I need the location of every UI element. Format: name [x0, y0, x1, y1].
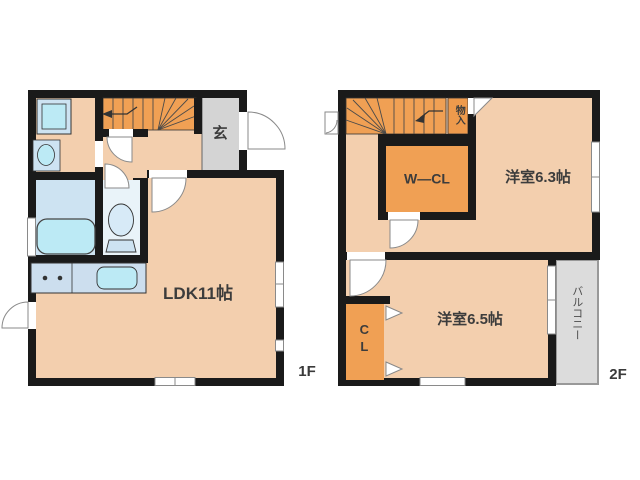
- stairs-icon: [346, 98, 446, 134]
- vanity-basin-icon: [33, 140, 60, 171]
- door-swing-icon: [2, 302, 28, 328]
- washing-machine-icon: [37, 99, 71, 134]
- bathtub-icon: [37, 219, 95, 254]
- window-icon: [420, 378, 465, 386]
- floor-1-label: 1F: [298, 364, 316, 380]
- casement-window-icon: [325, 112, 338, 134]
- kitchen-counter-icon: [31, 263, 146, 293]
- ldk-room-label: LDK11帖: [163, 285, 233, 303]
- entrance-label: 玄: [212, 126, 227, 142]
- room-6-5-label: 洋室6.5帖: [437, 312, 503, 328]
- closet-label: CL: [357, 322, 371, 356]
- walk-in-closet-label: W—CL: [404, 172, 450, 187]
- window-icon: [276, 340, 284, 351]
- floor-1-plan: [2, 90, 285, 386]
- balcony-label: バルコニー: [570, 286, 582, 341]
- floor-plan-drawing: [0, 0, 640, 480]
- floor-plan-image: 玄 LDK11帖 1F 物入 W—CL 洋室6.3帖 洋室6.5帖 CL バルコ…: [0, 0, 640, 480]
- storage-label: 物入: [453, 105, 464, 125]
- entry-door-swing-icon: [248, 112, 285, 149]
- room-6-3-label: 洋室6.3帖: [505, 170, 571, 186]
- stairs-icon: [102, 98, 196, 130]
- window-icon: [28, 218, 36, 256]
- kitchen-sink-icon: [97, 267, 137, 289]
- toilet-icon: [106, 204, 136, 252]
- floor-2-label: 2F: [609, 367, 627, 383]
